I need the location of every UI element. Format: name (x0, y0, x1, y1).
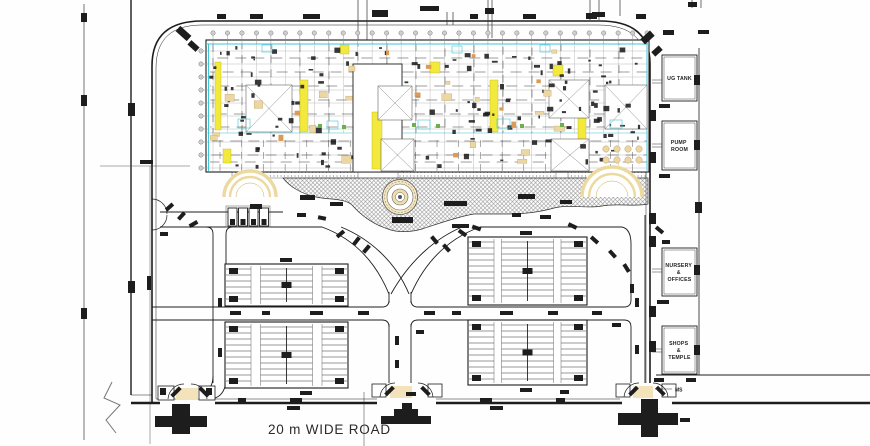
furniture-mark (546, 139, 552, 142)
furniture-mark (477, 108, 480, 111)
furniture-mark (246, 133, 251, 135)
furniture-mark (492, 61, 498, 63)
box-label-line: NURSERY (665, 263, 692, 269)
furniture-mark (225, 87, 227, 91)
plan-mark (695, 202, 702, 213)
furniture-mark (618, 108, 620, 113)
plan-mark (635, 345, 639, 354)
plan-mark (622, 263, 630, 273)
parked-car (229, 378, 238, 384)
grid-bubble (298, 31, 302, 35)
furniture-mark (417, 64, 420, 69)
grid-bubble (515, 31, 519, 35)
room-fill (346, 96, 353, 100)
plan-mark (147, 276, 151, 290)
furniture-mark (379, 47, 382, 49)
plan-mark (300, 195, 315, 200)
grid-bubble (529, 31, 533, 35)
parking-block (468, 320, 587, 385)
room-fill (442, 94, 452, 101)
plan-mark (694, 345, 700, 355)
furniture-mark (412, 62, 418, 65)
gate-post (428, 384, 442, 397)
room-fill (319, 91, 327, 98)
planter-mark (342, 125, 346, 129)
room-fill (544, 90, 552, 96)
plan-mark (358, 311, 369, 315)
furniture-mark (278, 118, 282, 121)
grid-bubble (630, 31, 634, 35)
plan-mark (560, 390, 569, 394)
plan-mark (330, 202, 343, 206)
room-fill (342, 156, 352, 164)
furniture-mark (603, 106, 609, 111)
furniture-mark (568, 68, 571, 73)
furniture-mark (467, 101, 470, 103)
furniture-mark (488, 128, 492, 133)
plan-mark (649, 152, 656, 163)
fixture-mark (426, 65, 431, 69)
stair-court (246, 85, 292, 132)
box-label: PUMP ROOM (671, 140, 688, 153)
bus-mark (230, 219, 235, 225)
plan-mark (694, 265, 700, 275)
plan-mark (649, 236, 656, 247)
furniture-mark (562, 111, 566, 113)
plan-mark (300, 391, 312, 395)
furniture-mark (467, 66, 472, 71)
plan-mark (262, 311, 270, 315)
furniture-mark (549, 84, 555, 88)
plan-mark (424, 311, 435, 315)
gate-podium (394, 409, 418, 418)
grid-bubble (616, 31, 620, 35)
furniture-mark (251, 93, 254, 98)
furniture-mark (470, 138, 474, 140)
fixture-mark (295, 111, 300, 116)
furniture-mark (220, 52, 222, 55)
grid-bubble (457, 31, 461, 35)
furniture-mark (295, 101, 299, 104)
furniture-mark (500, 84, 504, 89)
plan-mark (81, 13, 87, 22)
furniture-mark (492, 114, 494, 116)
plan-mark (686, 378, 696, 382)
grid-bubble (500, 31, 504, 35)
furniture-mark (608, 134, 613, 137)
furniture-mark (565, 81, 568, 84)
furniture-mark (291, 101, 294, 105)
grid-bubble (312, 31, 316, 35)
junction-arcs (382, 300, 418, 327)
utility-box-nursery-offices: NURSERY & OFFICES (662, 248, 697, 296)
plan-mark (395, 360, 399, 368)
plan-mark (290, 398, 302, 402)
furniture-mark (532, 140, 537, 145)
furniture-mark (445, 65, 449, 68)
room-fill (225, 94, 234, 101)
furniture-mark (275, 126, 278, 128)
plan-mark (470, 14, 478, 19)
plan-mark (512, 213, 521, 217)
gate-post (616, 384, 630, 397)
furniture-mark (512, 56, 517, 58)
bus-bays (226, 206, 270, 227)
grid-bubble (587, 31, 591, 35)
junction-arcs (206, 227, 233, 234)
room-fill (475, 97, 479, 101)
furniture-mark (620, 125, 625, 127)
plan-mark (297, 213, 306, 217)
fixture-mark (386, 50, 389, 55)
grid-bubble (413, 31, 417, 35)
plan-mark (362, 244, 371, 253)
plan-mark (452, 311, 461, 315)
gate-post (372, 384, 386, 397)
building-block (199, 31, 650, 178)
road-label: 20 m WIDE ROAD (268, 422, 391, 437)
room-fill (210, 136, 217, 141)
furniture-mark (586, 159, 589, 164)
gate-south-west (155, 384, 215, 434)
furniture-mark (224, 104, 228, 107)
stair-court (378, 86, 412, 120)
room-fill (254, 101, 263, 109)
furniture-mark (319, 73, 323, 76)
grid-bubble (254, 31, 258, 35)
grid-bubble (199, 140, 203, 144)
west-avenue (213, 234, 226, 383)
furniture-mark (485, 112, 491, 116)
parked-car (574, 324, 583, 330)
plan-mark (590, 236, 599, 245)
plan-mark (520, 388, 532, 392)
central-avenue (389, 292, 411, 383)
table-circle (625, 157, 631, 163)
furniture-mark (631, 131, 636, 133)
furniture-mark (241, 116, 246, 118)
plan-mark (659, 174, 670, 178)
core-highlight (223, 149, 231, 163)
plan-mark (416, 330, 424, 334)
plan-mark (630, 284, 634, 293)
utility-box-ug-tank: UG TANK (662, 55, 697, 101)
plan-mark (523, 14, 536, 19)
grid-bubble (327, 31, 331, 35)
furniture-mark (593, 90, 598, 92)
plan-mark (395, 336, 399, 345)
gates: MS (155, 383, 683, 437)
core-highlight (340, 45, 349, 54)
plan-mark (458, 229, 468, 237)
furniture-mark (464, 154, 469, 159)
parked-car (574, 375, 583, 381)
fixture-mark (415, 93, 421, 97)
bus-mark (241, 219, 246, 225)
plan-mark (568, 222, 578, 229)
furniture-mark (528, 57, 530, 60)
furniture-mark (541, 70, 543, 75)
plan-mark (654, 378, 664, 382)
furniture-mark (465, 53, 471, 57)
furniture-mark (638, 125, 640, 129)
bus-mark (262, 219, 267, 225)
planter-mark (520, 124, 524, 128)
plan-mark (218, 348, 222, 357)
box-label-line: TEMPLE (668, 355, 691, 361)
furniture-mark (560, 74, 564, 77)
plan-mark (548, 311, 558, 315)
parking-block (225, 264, 348, 306)
plan-mark (636, 14, 646, 19)
grid-bubble (442, 31, 446, 35)
plan-mark (444, 201, 467, 206)
plan-mark (480, 398, 492, 402)
planter-mark (412, 123, 416, 127)
plan-mark (230, 311, 241, 315)
parked-car (472, 295, 481, 301)
furniture-mark (289, 118, 294, 123)
grid-bubble (199, 114, 203, 118)
junction-arcs (624, 300, 631, 327)
plan-mark (540, 215, 551, 219)
furniture-mark (484, 54, 489, 59)
plan-mark (238, 398, 246, 402)
furniture-mark (273, 135, 275, 137)
room-fill (552, 50, 557, 53)
box-label-line: SHOPS (669, 341, 689, 347)
furniture-mark (453, 59, 457, 61)
plan-mark (420, 6, 439, 11)
furniture-mark (550, 64, 553, 69)
stair-court (381, 139, 414, 171)
grid-bubble (199, 88, 203, 92)
furniture-mark (591, 102, 594, 107)
grid-bubble (199, 75, 203, 79)
table-circle (625, 146, 631, 152)
site-plan-drawing: MS UG TANK PUMP ROOM NURSERY & OFFICES (0, 0, 870, 446)
furniture-mark (599, 64, 602, 66)
fixture-mark (511, 122, 516, 128)
room-fill (518, 159, 527, 163)
furniture-mark (272, 49, 277, 54)
grid-bubble (199, 127, 203, 131)
fixture-mark (472, 54, 476, 57)
grid-bubble (240, 31, 244, 35)
grid-bubble (283, 31, 287, 35)
furniture-mark (626, 104, 631, 108)
plan-mark (649, 306, 656, 317)
box-label-line: UG TANK (667, 76, 692, 82)
furniture-mark (560, 99, 562, 101)
parked-car (574, 241, 583, 247)
furniture-mark (256, 165, 259, 169)
grid-bubble (199, 101, 203, 105)
grid-bubble (199, 153, 203, 157)
furniture-mark (236, 164, 239, 166)
furniture-mark (235, 46, 237, 50)
table-circle (614, 157, 620, 163)
furniture-mark (469, 120, 475, 123)
plan-mark (406, 392, 416, 396)
plan-mark (176, 26, 192, 41)
gate-south-east: MS (616, 383, 683, 437)
grid-bubble (544, 31, 548, 35)
table-circle (603, 157, 609, 163)
plan-mark (659, 104, 670, 108)
furniture-mark (538, 115, 540, 118)
core-highlight (372, 112, 382, 169)
plan-mark (250, 14, 263, 19)
room-fill (310, 125, 316, 133)
plan-mark (680, 418, 690, 422)
planter-mark (318, 124, 322, 128)
plan-mark (560, 200, 572, 204)
parked-car (472, 324, 481, 330)
furniture-mark (346, 61, 349, 66)
furniture-mark (452, 130, 455, 134)
parked-car (335, 296, 344, 302)
furniture-mark (606, 82, 608, 84)
grid-bubble (341, 31, 345, 35)
furniture-mark (437, 164, 441, 168)
plan-mark (694, 75, 700, 85)
furniture-mark (579, 107, 581, 111)
furniture-mark (580, 144, 586, 149)
gate-post-mark (160, 388, 166, 395)
grid-bubble (356, 31, 360, 35)
plan-mark (649, 213, 656, 224)
furniture-mark (430, 110, 435, 115)
plan-mark (81, 95, 87, 106)
fixture-mark (499, 107, 503, 110)
furniture-mark (620, 48, 626, 53)
plan-mark (218, 298, 222, 307)
furniture-mark (239, 132, 243, 136)
parked-car (335, 326, 344, 332)
parked-car (335, 268, 344, 274)
plan-mark (140, 160, 153, 164)
room-fill (445, 81, 450, 84)
fixture-mark (453, 153, 458, 158)
grid-bubble (269, 31, 273, 35)
east-avenue (622, 215, 645, 383)
furniture-mark (309, 69, 314, 71)
plan-mark (81, 308, 87, 319)
room-fill (470, 142, 476, 148)
parked-car (523, 268, 533, 274)
road-curve (391, 227, 462, 294)
table-circle (614, 146, 620, 152)
bus-mark (251, 219, 256, 225)
plan-mark (520, 231, 532, 235)
table-circle (636, 157, 642, 163)
furniture-mark (500, 160, 503, 162)
grid-bubble (199, 62, 203, 66)
plan-mark (694, 140, 700, 150)
furniture-mark (603, 134, 606, 138)
plan-mark (128, 103, 135, 116)
furniture-mark (251, 56, 255, 58)
parked-car (229, 296, 238, 302)
furniture-mark (557, 61, 561, 65)
plan-mark (608, 249, 617, 258)
grid-bubble (370, 31, 374, 35)
plan-mark (662, 240, 670, 244)
furniture-mark (518, 116, 522, 120)
plan-mark (657, 300, 669, 304)
parked-car (472, 241, 481, 247)
furniture-mark (594, 103, 598, 108)
west-gate-arcs (152, 199, 167, 230)
furniture-mark (318, 81, 324, 84)
parked-car (472, 375, 481, 381)
grid-bubble (471, 31, 475, 35)
fountain-center (398, 195, 402, 199)
parking-block (225, 322, 348, 388)
plan-mark (392, 217, 413, 223)
box-label-line: & (677, 270, 681, 276)
grid-bubble (486, 31, 490, 35)
plan-mark (651, 45, 662, 56)
plan-mark (500, 311, 513, 315)
furniture-mark (213, 66, 216, 69)
break-symbol (104, 382, 120, 433)
parked-car (523, 350, 533, 356)
utility-buildings: UG TANK PUMP ROOM NURSERY & OFFICES SHOP… (652, 55, 697, 374)
furniture-mark (635, 63, 638, 65)
box-label-line: ROOM (671, 147, 688, 153)
gate-south-center (372, 383, 442, 424)
plan-mark (698, 30, 709, 34)
planter-mark (560, 123, 564, 127)
parked-car (574, 295, 583, 301)
table-circle (603, 146, 609, 152)
furniture-mark (311, 56, 316, 60)
plan-mark (472, 225, 482, 232)
plan-mark (318, 215, 327, 221)
furniture-mark (251, 72, 253, 77)
fixture-mark (536, 79, 540, 83)
table-circle (636, 146, 642, 152)
furniture-mark (567, 126, 572, 129)
furniture-mark (325, 165, 330, 167)
fountain (383, 180, 418, 215)
fixture-mark (279, 135, 284, 141)
furniture-mark (547, 107, 553, 112)
plan-mark (217, 14, 226, 19)
furniture-mark (255, 80, 262, 85)
furniture-mark (209, 76, 213, 79)
core-highlight (215, 62, 221, 130)
box-label-line: PUMP (671, 140, 687, 146)
grid-bubble (428, 31, 432, 35)
furniture-mark (476, 129, 482, 132)
plan-mark (635, 298, 639, 307)
core-highlight (430, 62, 440, 73)
plan-mark (452, 224, 469, 228)
furniture-mark (405, 81, 409, 83)
box-label-line: OFFICES (668, 277, 692, 283)
furniture-mark (334, 48, 340, 53)
plan-mark (250, 204, 262, 209)
grid-bubble (199, 166, 203, 170)
plan-mark (303, 14, 320, 19)
box-label: UG TANK (667, 76, 692, 82)
grid-bubble (399, 31, 403, 35)
parking-block (468, 237, 587, 305)
furniture-mark (240, 120, 244, 122)
